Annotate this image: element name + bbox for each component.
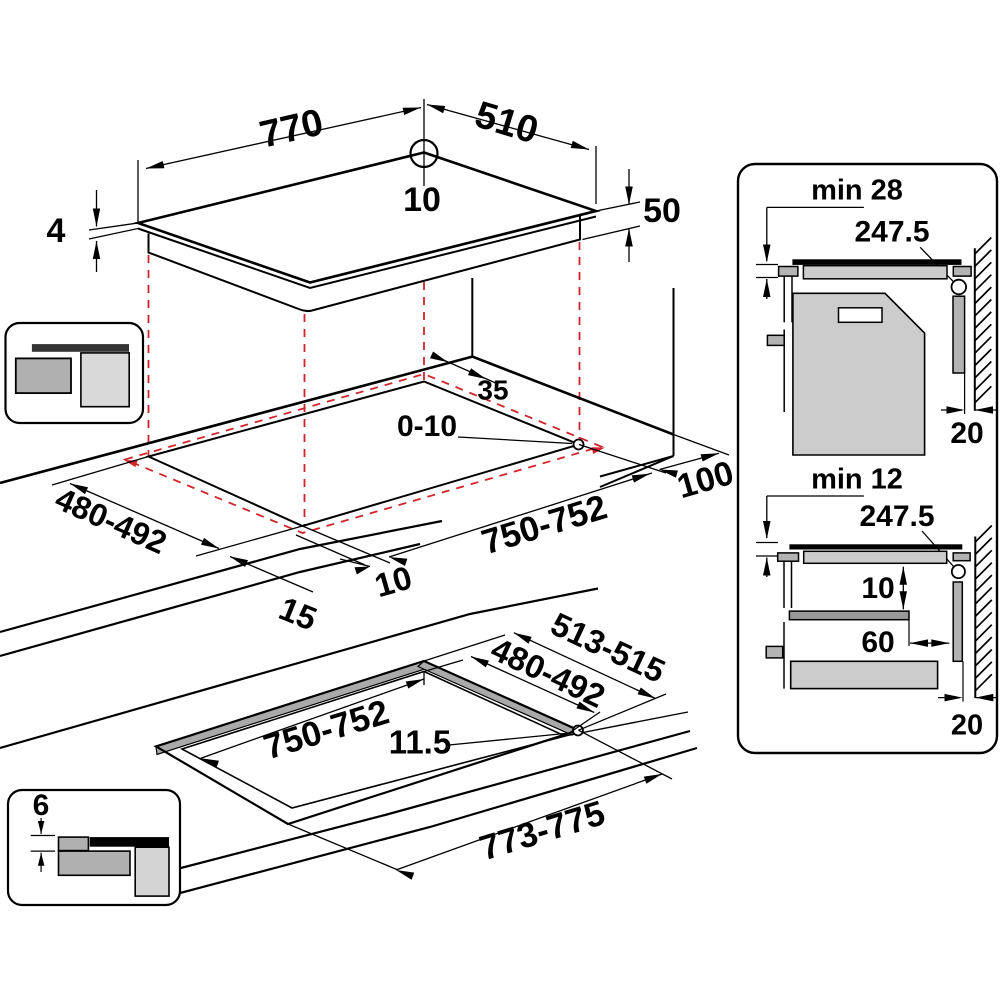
svg-text:11.5: 11.5	[389, 724, 451, 761]
svg-text:50: 50	[643, 192, 681, 230]
svg-text:60: 60	[861, 626, 894, 659]
svg-text:247.5: 247.5	[854, 215, 929, 248]
svg-text:6: 6	[33, 789, 50, 822]
svg-text:0-10: 0-10	[397, 410, 457, 443]
svg-text:510: 510	[470, 94, 543, 153]
svg-text:min 12: min 12	[811, 464, 903, 496]
svg-text:770: 770	[256, 101, 327, 156]
svg-text:100: 100	[673, 454, 738, 506]
svg-text:10: 10	[370, 558, 415, 604]
svg-text:247.5: 247.5	[859, 500, 934, 533]
svg-text:min 28: min 28	[811, 175, 903, 207]
svg-text:20: 20	[950, 417, 983, 450]
svg-text:750-752: 750-752	[477, 487, 611, 562]
svg-text:480-492: 480-492	[50, 480, 172, 561]
svg-text:773-775: 773-775	[475, 793, 609, 868]
svg-text:4: 4	[47, 212, 66, 250]
svg-text:35: 35	[477, 374, 508, 405]
svg-text:10: 10	[861, 572, 894, 605]
svg-text:15: 15	[274, 589, 322, 637]
svg-text:750-752: 750-752	[259, 692, 393, 767]
svg-text:20: 20	[951, 710, 983, 742]
svg-text:10: 10	[403, 181, 441, 219]
